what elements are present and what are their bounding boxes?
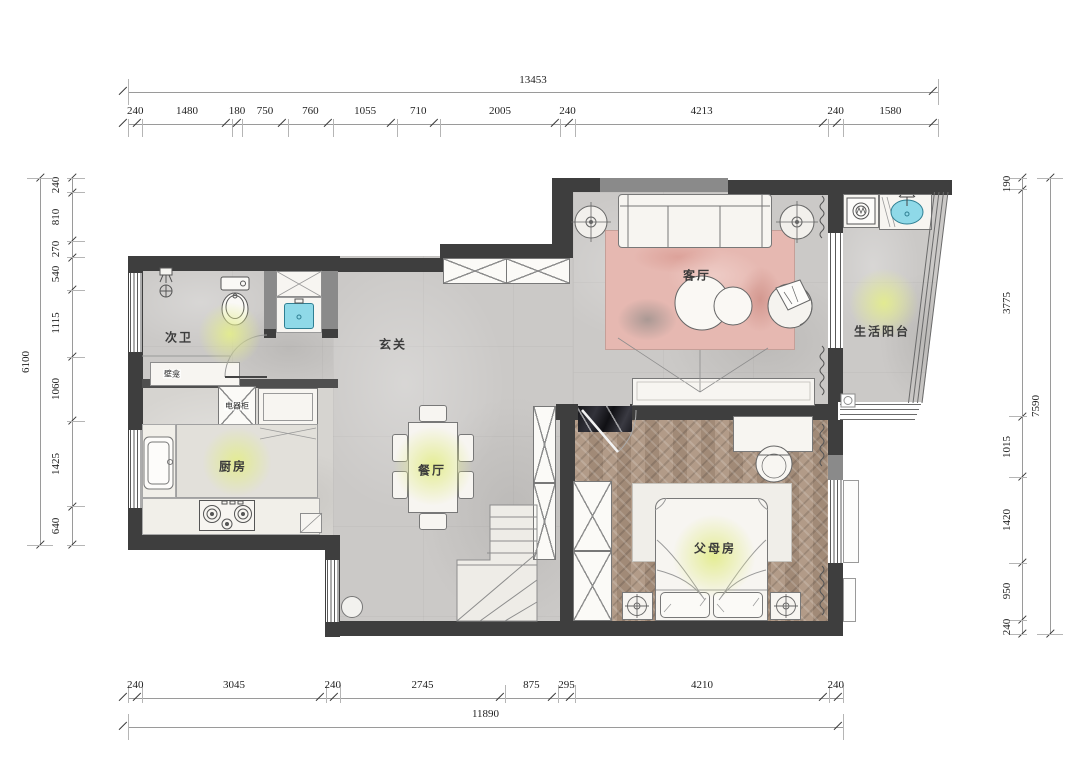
dimension-line	[575, 119, 576, 137]
dimension-label: 4210	[691, 679, 713, 691]
wall	[552, 178, 600, 192]
dimension-label: 240	[559, 105, 576, 117]
dimension-label: 240	[127, 105, 144, 117]
wall	[828, 563, 843, 621]
dimension-line	[1037, 634, 1063, 635]
dimension-line	[128, 124, 938, 125]
dimension-label: 750	[257, 105, 274, 117]
dimension-line	[575, 685, 576, 703]
dimension-line	[128, 92, 938, 93]
dimension-line	[128, 79, 129, 105]
dimension-line	[843, 714, 844, 740]
kitchen-counter-left	[142, 424, 176, 498]
window-sill	[843, 578, 856, 622]
wall	[264, 329, 276, 338]
dimension-line	[1037, 178, 1063, 179]
stone-feature-wall	[578, 406, 632, 432]
dimension-line	[828, 119, 829, 137]
dimension-label: 1115	[50, 313, 62, 334]
dimension-label: 4213	[691, 105, 713, 117]
dimension-line	[128, 119, 129, 137]
wardrobe	[573, 481, 612, 551]
dimension-label: 295	[558, 679, 575, 691]
shoe-cabinet	[506, 258, 570, 284]
dimension-line	[440, 119, 441, 137]
corner-cabinet	[300, 513, 322, 533]
dimension-label: 240	[127, 679, 144, 691]
washing-machine	[843, 194, 879, 228]
dimension-line	[397, 119, 398, 137]
dining-chair	[419, 405, 447, 422]
dimension-line	[333, 119, 334, 137]
dimension-label: 240	[1001, 619, 1013, 636]
fixture-label-appliance: 电器柜	[224, 402, 250, 411]
wall-beam	[322, 271, 338, 329]
dimension-label: 240	[827, 105, 844, 117]
dimension-line	[67, 241, 85, 242]
dimension-line	[72, 178, 73, 545]
dimension-label: 1580	[879, 105, 901, 117]
dimension-line	[128, 727, 843, 728]
dimension-line	[1022, 178, 1023, 634]
dimension-label: 13453	[519, 74, 547, 86]
dimension-line	[1009, 416, 1027, 417]
desk	[733, 416, 813, 452]
dimension-label: 11890	[472, 708, 499, 720]
dimension-line	[27, 178, 53, 179]
dimension-label: 2005	[489, 105, 511, 117]
dimension-tick	[118, 722, 127, 731]
dimension-line	[560, 119, 561, 137]
dimension-label: 2745	[412, 679, 434, 691]
room-label-balcony: 生活阳台	[854, 323, 910, 340]
dimension-line	[67, 506, 85, 507]
fridge-inner	[263, 393, 313, 421]
dimension-label: 710	[410, 105, 427, 117]
wardrobe	[573, 551, 612, 621]
window	[129, 430, 142, 508]
dimension-line	[288, 119, 289, 137]
dimension-line	[1009, 477, 1027, 478]
tv-console	[632, 378, 815, 406]
wall-beam	[264, 271, 276, 329]
dimension-line	[67, 290, 85, 291]
dimension-label: 190	[1001, 175, 1013, 192]
nightstand	[770, 592, 801, 620]
dimension-label: 3775	[1001, 292, 1013, 314]
dimension-label: 7590	[1030, 395, 1042, 417]
dimension-line	[40, 178, 41, 545]
room-label-living: 客厅	[683, 267, 711, 284]
dimension-label: 1420	[1001, 509, 1013, 531]
hall-closet	[533, 483, 556, 560]
dimension-label: 270	[50, 241, 62, 258]
shoe-cabinet	[443, 258, 507, 284]
dimension-label: 180	[229, 105, 246, 117]
dimension-line	[67, 178, 85, 179]
dimension-line	[938, 119, 939, 137]
room-label-kitchen: 厨房	[219, 458, 247, 475]
mirror-cabinet	[276, 271, 322, 297]
dimension-line	[128, 698, 843, 699]
dimension-label: 540	[50, 265, 62, 282]
dimension-line	[67, 545, 85, 546]
gas-stove	[199, 500, 255, 531]
dimension-label: 1015	[1001, 436, 1013, 458]
dimension-line	[843, 119, 844, 137]
wall	[128, 256, 340, 271]
dimension-line	[1050, 178, 1051, 634]
dimension-tick	[118, 693, 127, 702]
dimension-line	[1009, 563, 1027, 564]
sofa	[618, 194, 772, 248]
fixture-label-niche: 壁龛	[163, 370, 181, 379]
living-rug	[605, 230, 795, 350]
dining-chair	[419, 513, 447, 530]
wall	[322, 329, 338, 338]
wall	[128, 535, 340, 550]
dimension-label: 875	[523, 679, 540, 691]
wall-beam	[828, 455, 843, 480]
wall	[828, 192, 843, 233]
wall-beam	[600, 178, 728, 192]
dimension-label: 240	[50, 177, 62, 194]
wall	[333, 258, 443, 272]
dimension-line	[142, 119, 143, 137]
room-glow-bathroom	[198, 302, 262, 366]
dimension-label: 6100	[20, 351, 32, 373]
dimension-label: 950	[1001, 583, 1013, 600]
room-label-parents: 父母房	[694, 540, 736, 557]
dimension-tick	[118, 87, 127, 96]
laundry-counter	[879, 194, 932, 230]
wall	[325, 621, 843, 636]
dimension-line	[128, 714, 129, 740]
dimension-label: 760	[302, 105, 319, 117]
dimension-label: 640	[50, 517, 62, 534]
dimension-line	[67, 357, 85, 358]
dimension-line	[232, 119, 233, 137]
dimension-label: 1060	[50, 378, 62, 400]
nightstand	[622, 592, 653, 620]
window	[828, 480, 843, 563]
floor-plan: 次卫玄关客厅生活阳台厨房餐厅父母房壁龛电器柜 24014801807507601…	[0, 0, 1080, 767]
dimension-line	[67, 421, 85, 422]
dimension-label: 1055	[354, 105, 376, 117]
dimension-line	[505, 685, 506, 703]
dimension-line	[67, 192, 85, 193]
hall-closet	[533, 406, 556, 483]
dimension-line	[67, 257, 85, 258]
room-label-entry: 玄关	[379, 336, 407, 353]
dimension-line	[938, 79, 939, 105]
window	[326, 560, 339, 622]
vanity-sink	[284, 303, 314, 329]
balcony-parapet	[838, 402, 926, 420]
dimension-label: 240	[828, 679, 845, 691]
dimension-tick	[118, 119, 127, 128]
dimension-line	[242, 119, 243, 137]
dimension-label: 1480	[176, 105, 198, 117]
window	[129, 273, 142, 352]
room-label-dining: 餐厅	[418, 462, 446, 479]
balcony-door-window	[828, 233, 843, 348]
dimension-label: 1425	[50, 453, 62, 475]
dimension-label: 810	[50, 209, 62, 226]
dimension-label: 240	[325, 679, 342, 691]
window-sill	[843, 480, 859, 563]
dimension-line	[27, 545, 53, 546]
dimension-label: 3045	[223, 679, 245, 691]
room-label-bathroom: 次卫	[165, 329, 193, 346]
